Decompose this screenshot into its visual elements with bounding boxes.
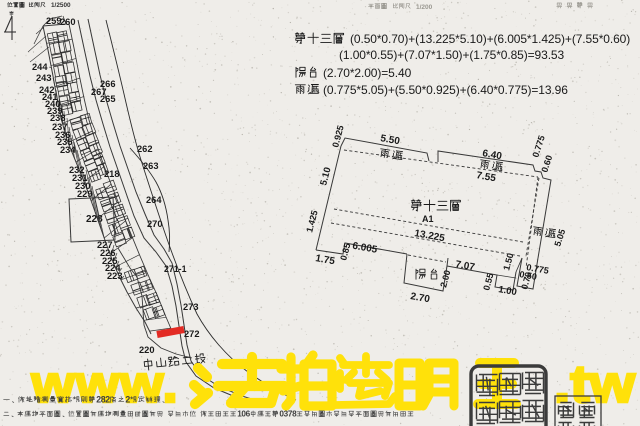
- svg-text:234: 234: [60, 145, 76, 155]
- svg-text:273: 273: [183, 302, 199, 312]
- svg-text:2: 2: [105, 394, 110, 404]
- svg-text:1/200: 1/200: [416, 4, 433, 11]
- svg-text:6: 6: [246, 410, 251, 419]
- svg-text:A1: A1: [422, 214, 434, 224]
- svg-text:244: 244: [32, 62, 48, 72]
- svg-text:243: 243: [36, 73, 52, 83]
- svg-text:1/2500: 1/2500: [51, 2, 71, 9]
- svg-text:.tw: .tw: [554, 354, 636, 413]
- svg-text:271-1: 271-1: [164, 264, 187, 274]
- svg-text:(0.775*5.05)+(5.50*0.925)+(6.4: (0.775*5.05)+(5.50*0.925)+(6.40*0.775)=1…: [323, 83, 568, 97]
- svg-text:272: 272: [184, 329, 200, 339]
- svg-text:262: 262: [137, 144, 153, 154]
- svg-text:270: 270: [147, 219, 163, 229]
- svg-text:264: 264: [146, 195, 162, 205]
- svg-text:(2.70*2.00)=5.40: (2.70*2.00)=5.40: [323, 66, 412, 80]
- svg-text:8: 8: [292, 410, 297, 419]
- svg-text:(0.50*0.70)+(13.225*5.10)+(6.0: (0.50*0.70)+(13.225*5.10)+(6.005*1.425)+…: [350, 32, 630, 46]
- svg-text:www.: www.: [30, 354, 178, 413]
- svg-text:265: 265: [100, 94, 116, 104]
- svg-text:218: 218: [104, 169, 120, 179]
- svg-text:2: 2: [125, 394, 130, 404]
- svg-text:(1.00*0.55)+(7.07*1.50)+(1.75*: (1.00*0.55)+(7.07*1.50)+(1.75*0.85)=93.5…: [339, 48, 564, 62]
- svg-text:229: 229: [77, 189, 93, 199]
- svg-text:263: 263: [143, 161, 159, 171]
- svg-text:223: 223: [107, 271, 123, 281]
- svg-text:260: 260: [60, 17, 76, 27]
